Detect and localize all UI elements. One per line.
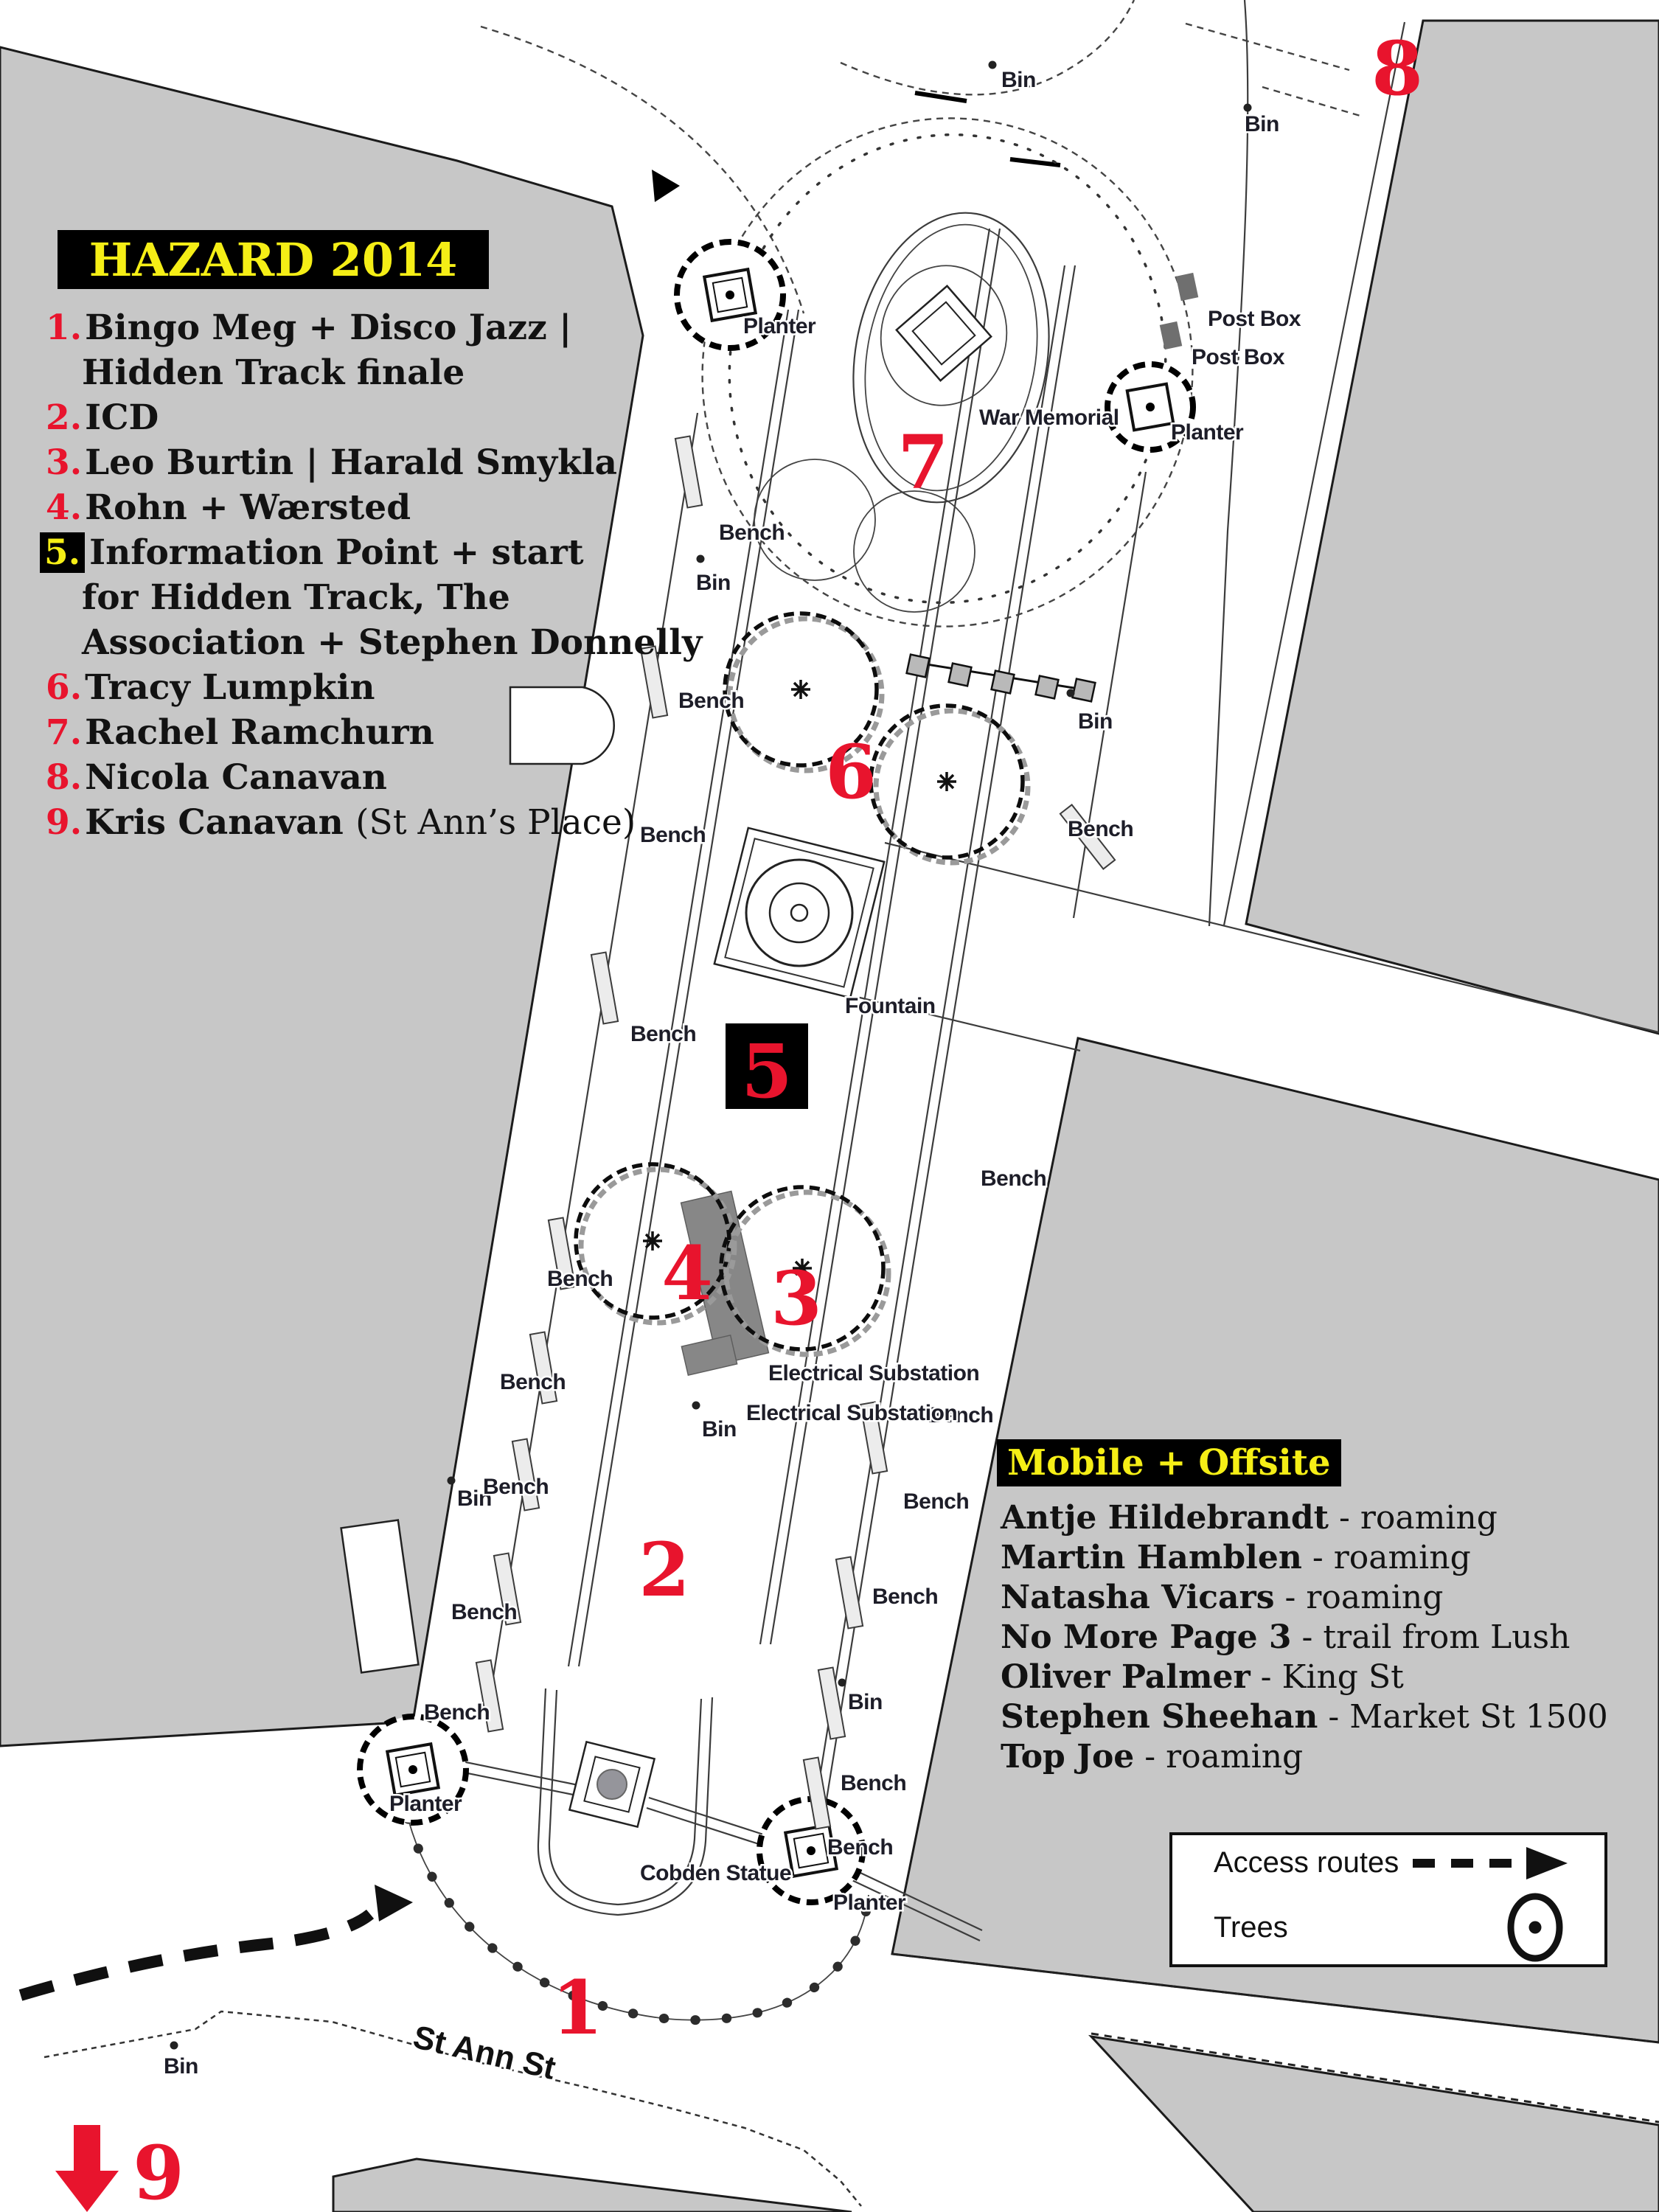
stage-number-4: 4 [661, 1230, 713, 1317]
legend-row-text: Association + Stephen Donnelly [82, 622, 702, 663]
artist-location: - King St [1251, 1658, 1404, 1696]
legend-row-text: for Hidden Track, The [82, 577, 510, 618]
bench-rect [591, 952, 618, 1023]
legend-row-text: Kris Canavan [85, 802, 355, 843]
stage-number-8: 8 [1371, 25, 1423, 112]
post-box-marker [1160, 321, 1183, 349]
legend-row-number: 6. [46, 667, 82, 708]
bin-dot [989, 61, 997, 69]
label-bench: Bench [719, 521, 785, 545]
entry-arrow-icon [652, 170, 680, 202]
legend-row-12: 9.Kris Canavan (St Ann’s Place) [46, 802, 636, 843]
label-planter: Planter [389, 1792, 462, 1816]
legend-row-suffix: (St Ann’s Place) [355, 802, 636, 843]
label-fountain: Fountain [845, 994, 936, 1018]
label-bench: Bench [640, 823, 706, 847]
legend-row-11: 8.Nicola Canavan [46, 757, 387, 798]
tree-symbol-icon [1498, 1891, 1572, 1964]
artist-location: - roaming [1134, 1738, 1303, 1775]
artist-location: - roaming [1302, 1539, 1471, 1576]
label-bench: Bench [483, 1475, 549, 1499]
tree-canopy-outline-2 [854, 491, 975, 612]
building-bottom-center [333, 2159, 852, 2212]
legend-row-text: Hidden Track finale [82, 352, 465, 393]
legend-row-number: 3. [46, 442, 82, 483]
label-bin: Bin [1001, 68, 1036, 92]
label-bin: Bin [1078, 709, 1113, 734]
mobile-offsite-row-3: Natasha Vicars - roaming [1001, 1579, 1443, 1616]
legend-row-number: 4. [46, 487, 82, 528]
label-war-memorial: War Memorial [979, 406, 1119, 430]
bin-dot [170, 2042, 178, 2050]
access-route-arrowhead-icon [375, 1885, 413, 1921]
event-map-poster: BinBinBinBinBinBinBinBinBenchBenchBenchB… [0, 0, 1659, 2212]
artist-location: - roaming [1275, 1579, 1444, 1616]
cobden-statue-base [597, 1770, 627, 1799]
legend-row-5: 4.Rohn + Wærsted [46, 487, 411, 528]
fountain-plinth-outer [714, 828, 884, 998]
legend-row-6: 5.Information Point + start [46, 532, 584, 573]
label-bin: Bin [848, 1690, 883, 1714]
legend-row-number: 9. [46, 802, 82, 843]
bollard-5 [1073, 679, 1096, 702]
legend-row-text: Nicola Canavan [85, 757, 387, 798]
tree-star-2 [937, 772, 956, 791]
mobile-offsite-title: Mobile + Offsite [1007, 1442, 1331, 1484]
label-bin: Bin [164, 2054, 198, 2079]
label-bench: Bench [500, 1370, 566, 1394]
label-bench: Bench [451, 1600, 517, 1624]
offsite-down-arrow-icon [55, 2125, 119, 2212]
map-key-trees-row: Trees [1172, 1891, 1604, 1964]
legend-row-text: Information Point + start [89, 532, 583, 573]
bin-dot [697, 555, 705, 563]
stage-number-5: 5 [741, 1028, 793, 1115]
building-top-right [1246, 21, 1659, 1034]
stage-number-6: 6 [825, 728, 877, 815]
label-bench: Bench [630, 1022, 696, 1046]
artist-location: - Market St 1500 [1318, 1698, 1607, 1736]
bin-dot [1244, 104, 1252, 112]
label-planter: Planter [743, 314, 816, 338]
legend-row-number: 8. [46, 757, 82, 798]
legend-row-text: Leo Burtin | Harald Smykla [85, 442, 617, 483]
label-st-ann-st: St Ann St [410, 2019, 560, 2087]
poster-title-box: HAZARD 2014 [58, 230, 489, 289]
building-alcove [510, 687, 614, 764]
legend-row-4: 3.Leo Burtin | Harald Smykla [46, 442, 617, 483]
poster-title: HAZARD 2014 [89, 233, 457, 287]
tree-star-1 [791, 680, 810, 699]
artist-name: Antje Hildebrandt [1001, 1499, 1329, 1537]
trees-label: Trees [1214, 1911, 1288, 1944]
artist-name: Top Joe [1001, 1738, 1134, 1775]
label-bench: Bench [872, 1585, 938, 1609]
tree-canopy-outline-1 [754, 459, 875, 580]
bench-rect [675, 436, 702, 507]
bollard-2 [949, 664, 972, 686]
road-curve-top [841, 0, 1134, 94]
bench-rect [836, 1557, 863, 1628]
label-post-box: Post Box [1208, 307, 1301, 331]
legend-row-text: Rohn + Wærsted [85, 487, 411, 528]
mobile-offsite-row-2: Martin Hamblen - roaming [1001, 1539, 1471, 1576]
bollard-3 [992, 671, 1015, 694]
label-bin: Bin [696, 571, 731, 595]
access-routes-label: Access routes [1214, 1846, 1399, 1879]
bin-dot [448, 1477, 456, 1485]
legend-row-1: 1.Bingo Meg + Disco Jazz | [46, 307, 571, 348]
stage-number-2: 2 [639, 1526, 690, 1613]
label-bin: Bin [702, 1417, 737, 1441]
building-bottom-right [1091, 2037, 1659, 2212]
map-key-box: Access routes Trees [1169, 1832, 1607, 1967]
artist-name: Martin Hamblen [1001, 1539, 1302, 1576]
road-edge-right [1209, 0, 1248, 926]
label-bench: Bench [981, 1166, 1046, 1191]
artist-name: Natasha Vicars [1001, 1579, 1275, 1616]
label-bench: Bench [1068, 817, 1133, 841]
label-bench: Bench [678, 689, 744, 713]
stage-number-1: 1 [552, 1964, 603, 2051]
mobile-offsite-header: Mobile + Offsite [997, 1439, 1341, 1486]
label-bench: Bench [903, 1489, 969, 1514]
label-cobden-statue: Cobden Statue [640, 1861, 791, 1885]
label-bench: Bench [827, 1835, 893, 1860]
bench-rect [818, 1667, 845, 1739]
legend-row-10: 7.Rachel Ramchurn [46, 712, 434, 753]
post-box-marker [1176, 273, 1199, 301]
planter-topright-dot [1146, 403, 1155, 411]
legend-row-number: 7. [46, 712, 82, 753]
map-key-access-row: Access routes [1172, 1835, 1604, 1891]
legend-row-7: for Hidden Track, The [82, 577, 510, 618]
bin-dot [838, 1679, 846, 1687]
legend-row-9: 6.Tracy Lumpkin [46, 667, 375, 708]
artist-location: - roaming [1329, 1499, 1498, 1537]
label-planter: Planter [833, 1891, 906, 1915]
label-bench: Bench [547, 1267, 613, 1291]
mobile-offsite-row-4: No More Page 3 - trail from Lush [1001, 1618, 1570, 1656]
artist-location: - trail from Lush [1292, 1618, 1571, 1656]
planter-topleft-dot [726, 291, 734, 299]
legend-row-text: Tracy Lumpkin [85, 667, 375, 708]
mobile-offsite-row-1: Antje Hildebrandt - roaming [1001, 1499, 1498, 1537]
bin-dot [692, 1402, 700, 1410]
legend-row-number: 2. [46, 397, 82, 438]
planter-bottomright-dot [807, 1846, 815, 1855]
label-post-box: Post Box [1192, 345, 1285, 369]
stage-number-9: 9 [133, 2129, 184, 2212]
legend-row-3: 2.ICD [46, 397, 159, 438]
electrical-substation-small [681, 1335, 737, 1375]
label-bench: Bench [424, 1700, 490, 1725]
legend-row-text: Rachel Ramchurn [85, 712, 434, 753]
planter-bottomleft-dot [408, 1765, 417, 1774]
statue-ray-1a [451, 1759, 578, 1785]
artist-name: Stephen Sheehan [1001, 1698, 1318, 1736]
legend-row-2: Hidden Track finale [82, 352, 465, 393]
legend-row-number: 1. [46, 307, 82, 348]
bollard-4 [1036, 676, 1059, 699]
stage-number-7: 7 [897, 419, 949, 506]
label-electrical-substation: Electrical Substation [746, 1401, 957, 1425]
artist-name: Oliver Palmer [1001, 1658, 1251, 1696]
legend-row-number: 5. [40, 532, 85, 573]
bin-dot [1067, 689, 1075, 698]
label-electrical-substation: Electrical Substation [768, 1361, 979, 1385]
road-line-topright-1 [1186, 24, 1349, 70]
mobile-offsite-row-5: Oliver Palmer - King St [1001, 1658, 1404, 1696]
label-bench: Bench [841, 1771, 906, 1795]
legend-row-text: ICD [85, 397, 159, 438]
mobile-offsite-row-7: Top Joe - roaming [1001, 1738, 1303, 1775]
bollard-1 [907, 655, 930, 678]
legend-row-text: Bingo Meg + Disco Jazz | [85, 307, 571, 348]
label-planter: Planter [1171, 420, 1244, 445]
statue-ray-2b [647, 1808, 775, 1849]
mobile-offsite-row-6: Stephen Sheehan - Market St 1500 [1001, 1698, 1608, 1736]
artist-name: No More Page 3 [1001, 1618, 1292, 1656]
label-bin: Bin [1245, 112, 1279, 136]
stage-number-3: 3 [771, 1255, 822, 1342]
access-route-dashed [21, 1914, 370, 1995]
legend-row-8: Association + Stephen Donnelly [82, 622, 702, 663]
statue-ray-2a [649, 1798, 777, 1839]
access-routes-arrow-icon [1410, 1844, 1572, 1882]
